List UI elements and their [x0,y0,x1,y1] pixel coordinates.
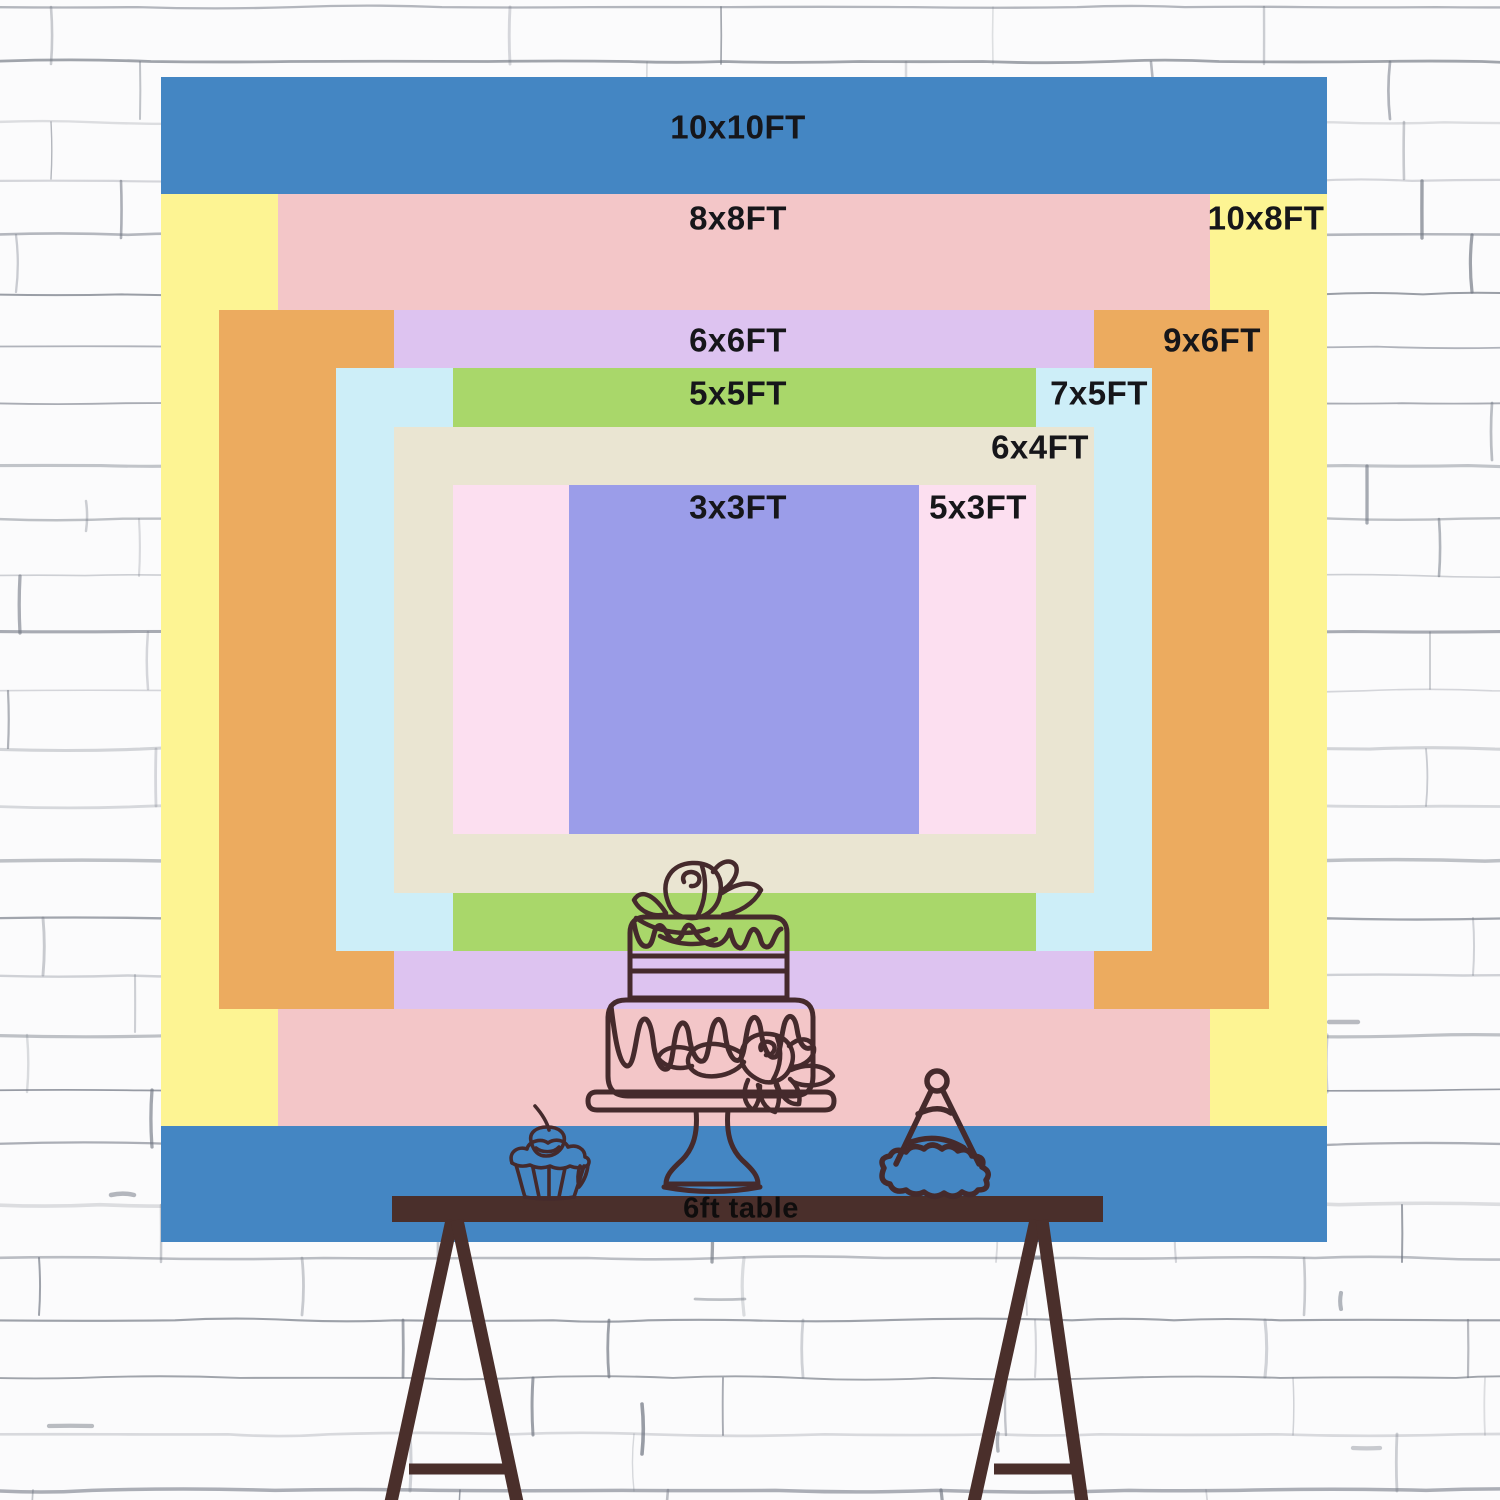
size-label-5x5: 5x5FT [689,377,787,410]
stage: 10x10FT10x8FT8x8FT9x6FT6x6FT7x5FT5x5FT6x… [0,0,1500,1500]
size-label-7x5: 7x5FT [1050,377,1148,410]
size-label-10x10: 10x10FT [670,111,806,144]
backdrop-size-chart: 10x10FT10x8FT8x8FT9x6FT6x6FT7x5FT5x5FT6x… [161,77,1327,1242]
table-size-label: 6ft table [683,1195,799,1224]
size-label-6x4: 6x4FT [991,431,1089,464]
size-label-6x6: 6x6FT [689,324,787,357]
size-label-5x3: 5x3FT [929,491,1027,524]
size-label-9x6: 9x6FT [1163,324,1261,357]
size-label-8x8: 8x8FT [689,202,787,235]
layer-rect-3x3 [569,485,919,835]
size-label-10x8: 10x8FT [1208,202,1325,235]
size-label-3x3: 3x3FT [689,491,787,524]
